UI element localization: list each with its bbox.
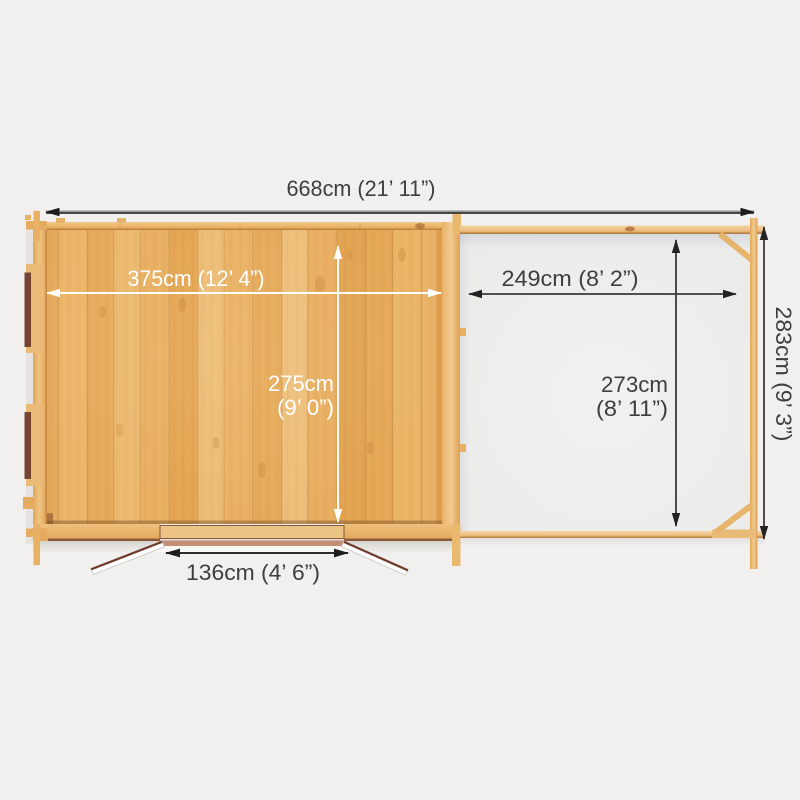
svg-text:249cm (8’ 2”): 249cm (8’ 2”) <box>502 266 639 291</box>
svg-text:375cm (12’ 4”): 375cm (12’ 4”) <box>128 266 265 291</box>
svg-text:(8’ 11”): (8’ 11”) <box>596 396 668 421</box>
svg-text:668cm (21’ 11”): 668cm (21’ 11”) <box>287 176 436 201</box>
svg-text:(9’ 0”): (9’ 0”) <box>277 395 334 420</box>
svg-text:273cm: 273cm <box>601 372 668 397</box>
svg-text:283cm (9’ 3”): 283cm (9’ 3”) <box>771 307 796 442</box>
svg-text:275cm: 275cm <box>268 371 334 396</box>
svg-text:136cm (4’ 6”): 136cm (4’ 6”) <box>186 560 320 585</box>
